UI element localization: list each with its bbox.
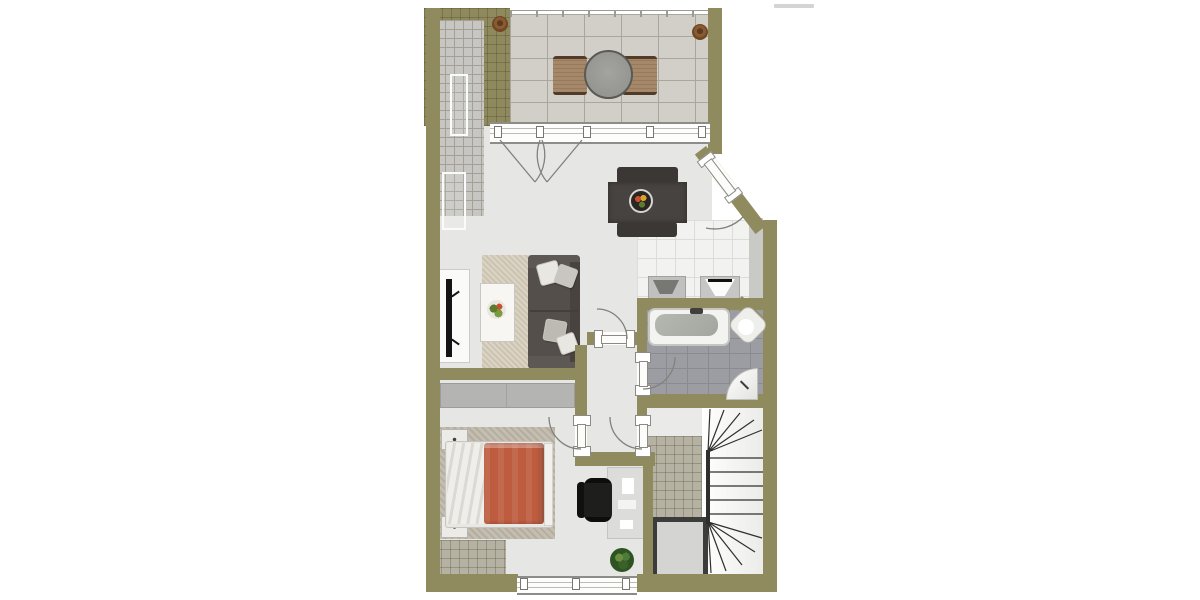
flower-arrangement — [487, 300, 506, 319]
tv — [446, 279, 452, 357]
sofa-cushion-seam — [530, 310, 578, 312]
window-mullion — [494, 126, 502, 138]
door-leaf-bedroom — [577, 424, 586, 448]
roof-window-lower — [442, 172, 466, 230]
bed-duvet — [484, 443, 544, 524]
wall-terrace-east — [708, 8, 722, 154]
winder-staircase — [702, 408, 763, 576]
door-leaf-stairwell — [639, 424, 648, 448]
plant-pot-right — [692, 24, 708, 40]
bed-side-rail — [544, 443, 553, 526]
wall-west — [426, 8, 440, 576]
window-north-band — [490, 122, 710, 144]
shower-handle — [740, 380, 749, 389]
terrace-railing — [510, 10, 708, 17]
wash-basin-tap — [708, 279, 732, 282]
watermark-text — [774, 4, 814, 8]
bed-sheets-pillows — [447, 443, 489, 524]
window-mullion — [622, 578, 630, 590]
door-leaf-bathroom — [639, 361, 648, 387]
bathtub-basin — [655, 314, 718, 336]
kitchen-sink-basin — [653, 280, 679, 294]
wall-south-left — [426, 574, 518, 592]
outdoor-round-table — [584, 50, 633, 99]
dining-chair-bottom — [617, 222, 677, 237]
bathtub — [648, 308, 730, 346]
wardrobe — [440, 383, 575, 408]
door-leaf-living — [601, 335, 627, 344]
office-chair-seat — [584, 478, 612, 522]
wall-bedroom-north — [432, 368, 575, 380]
floor-plan-canvas — [0, 0, 1200, 600]
bathtub-faucet — [690, 308, 703, 314]
outdoor-chair-left — [553, 56, 587, 95]
wall-south-right — [637, 574, 777, 592]
desk — [607, 467, 645, 539]
window-mullion — [698, 126, 706, 138]
window-mullion — [572, 578, 580, 590]
window-mullion — [520, 578, 528, 590]
roof-window-upper — [450, 74, 468, 136]
tv-sideboard — [439, 269, 470, 363]
plant-pot-left — [492, 16, 508, 32]
wall-stairwell-west — [643, 452, 653, 576]
window-mullion — [646, 126, 654, 138]
door-frame — [626, 330, 635, 348]
kitchen-sink-unit — [648, 276, 686, 300]
fruit-bowl — [629, 189, 653, 213]
wall-east — [763, 220, 777, 592]
window-mullion — [536, 126, 544, 138]
potted-plant — [610, 548, 634, 572]
bedroom-roof-hatch — [432, 540, 506, 576]
wash-basin-unit — [700, 276, 740, 300]
window-mullion — [583, 126, 591, 138]
